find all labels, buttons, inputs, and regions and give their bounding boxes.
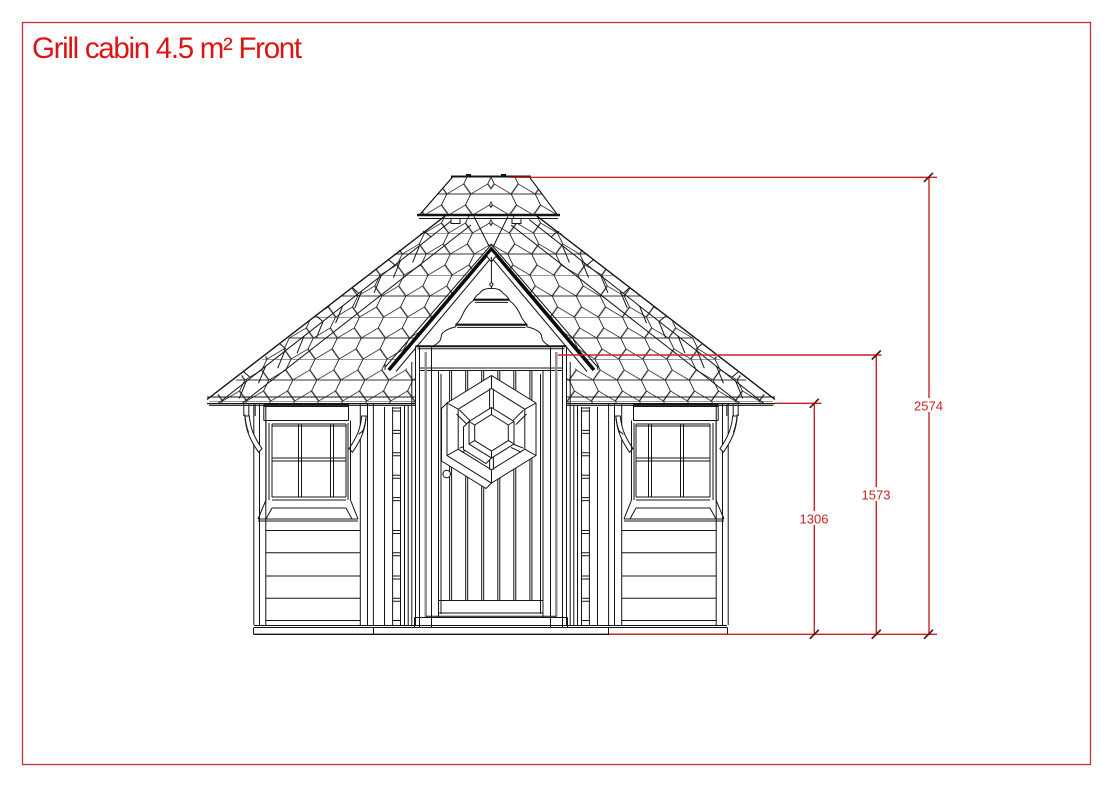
svg-text:Grill cabin 4.5 m² Front: Grill cabin 4.5 m² Front xyxy=(32,32,302,65)
svg-text:1306: 1306 xyxy=(800,512,829,527)
svg-text:1573: 1573 xyxy=(862,488,891,503)
svg-text:2574: 2574 xyxy=(914,399,943,414)
